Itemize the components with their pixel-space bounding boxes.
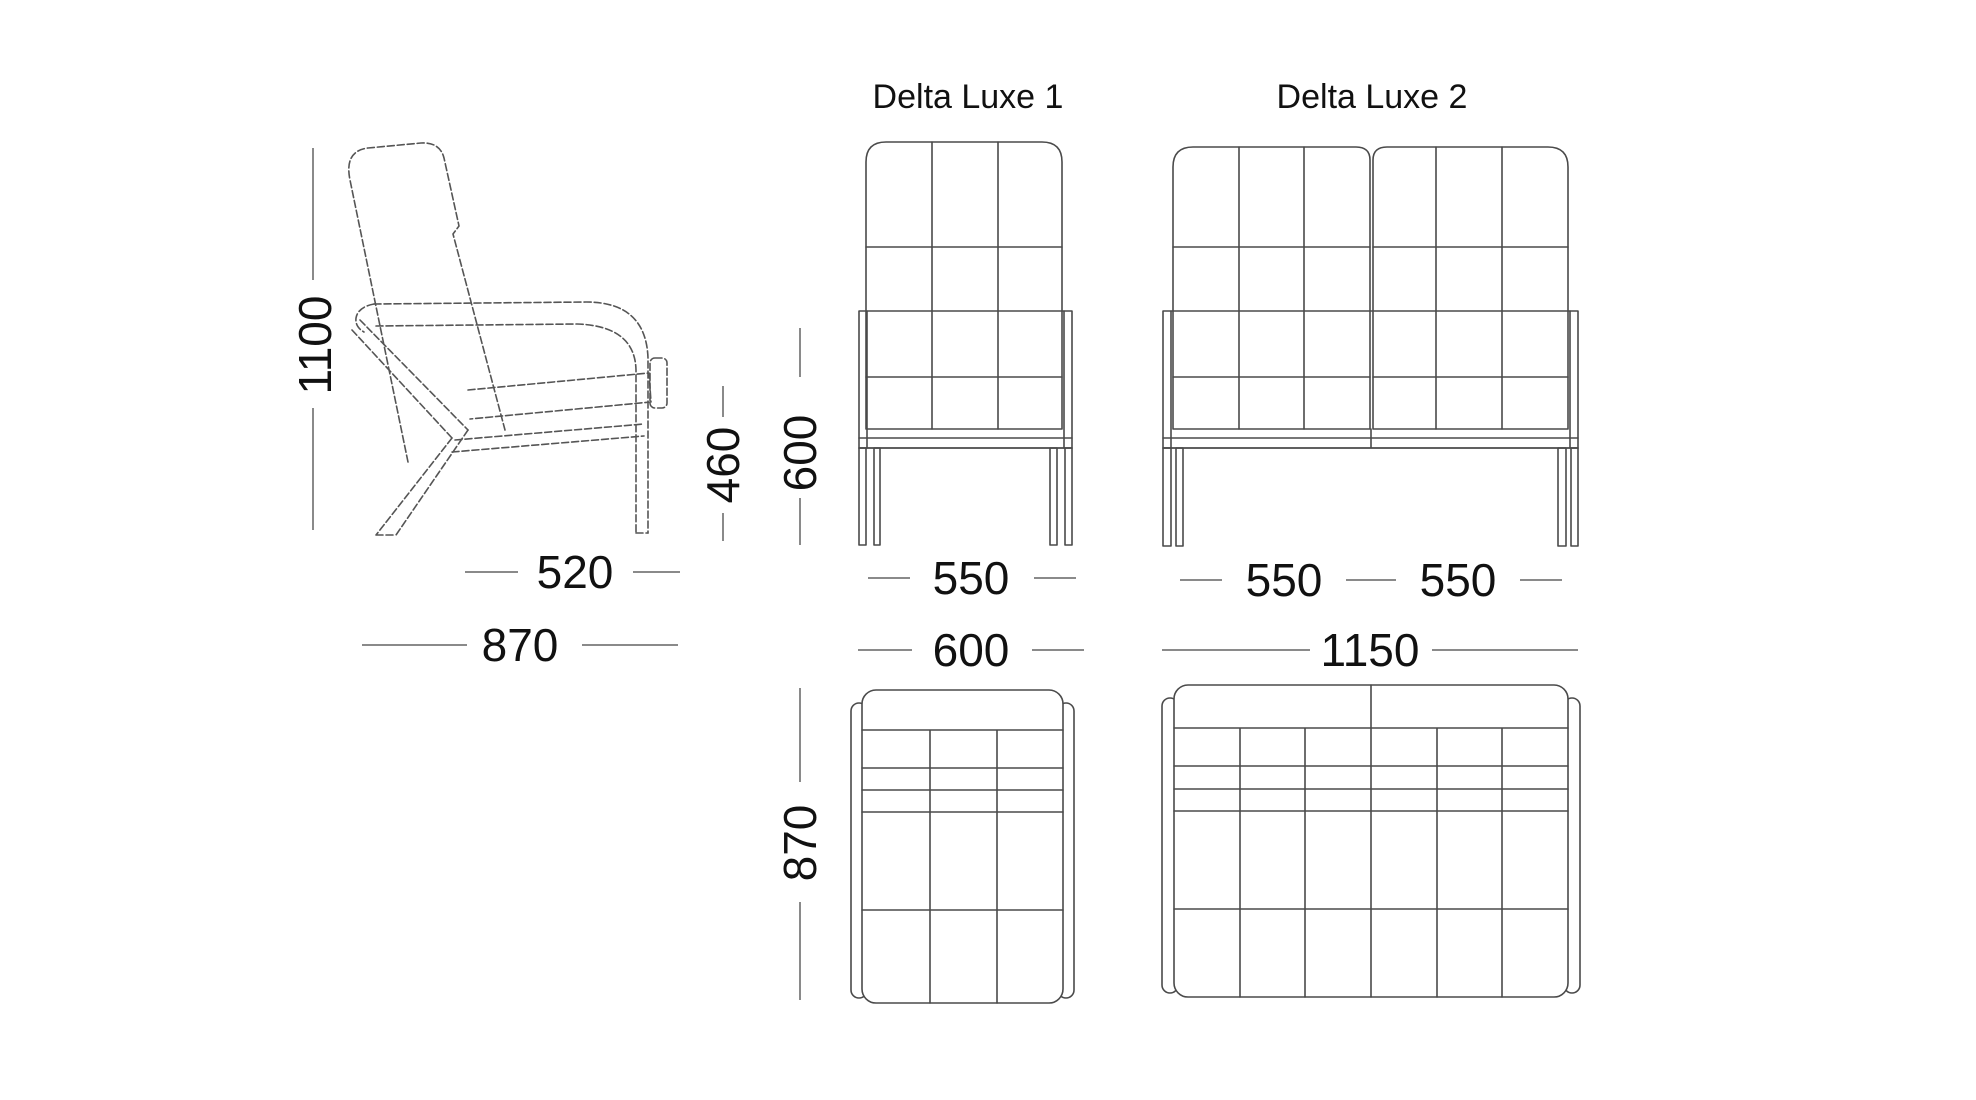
dimension-seat-height: 460	[697, 386, 749, 541]
dimension-label-seat-height: 460	[697, 427, 749, 504]
legs	[1163, 448, 1578, 546]
dimension-label-right-seat: 550	[1420, 554, 1497, 606]
dimension-overall-depth: 870	[362, 619, 678, 671]
delta-luxe-1-top-view: 600 870	[774, 624, 1084, 1003]
seat-rail	[452, 424, 644, 452]
dimension-label-top-width-double: 1150	[1321, 624, 1420, 676]
delta-luxe-2-top-view: 1150	[1162, 624, 1580, 997]
armchair-side-view: 1100 460 520 870	[289, 143, 749, 671]
delta-luxe-1-front-view: Delta Luxe 1	[774, 78, 1076, 604]
dimension-label-seat-depth: 520	[537, 546, 614, 598]
dimension-top-width: 600	[858, 624, 1084, 676]
luxe2-front-drawing	[1163, 147, 1578, 546]
delta-luxe-2-front-view: Delta Luxe 2	[1163, 78, 1578, 606]
dimension-label-seat-width: 550	[933, 552, 1010, 604]
model-2-title: Delta Luxe 2	[1277, 78, 1468, 116]
dimension-label-top-depth: 870	[774, 805, 826, 882]
frame-strut	[352, 320, 468, 438]
dimension-top-width-double: 1150	[1162, 624, 1578, 676]
armrest-frame-inner	[867, 311, 1064, 448]
armrest-frame	[859, 311, 1072, 448]
dimension-label-depth: 870	[482, 619, 559, 671]
rear-leg	[376, 430, 468, 535]
backrest-grid	[866, 142, 1062, 429]
dimension-top-depth: 870	[774, 688, 826, 1000]
luxe2-top-drawing	[1162, 685, 1580, 997]
luxe1-front-drawing	[859, 142, 1072, 545]
backrest	[866, 142, 1062, 429]
dimension-label-left-seat: 550	[1246, 554, 1323, 606]
seat-band	[1163, 429, 1578, 448]
dimension-seat-depth: 520	[465, 546, 680, 598]
dimension-label-back-height: 600	[774, 415, 826, 492]
backrest-right	[1373, 147, 1568, 429]
model-1-title: Delta Luxe 1	[873, 78, 1064, 116]
side-view-chair-drawing	[349, 143, 667, 535]
side-bracket	[650, 358, 667, 408]
seat-body	[862, 690, 1063, 1003]
backrest-left	[1173, 147, 1370, 429]
legs	[859, 448, 1072, 545]
dimension-label-height: 1100	[289, 296, 341, 395]
dimension-overall-height: 1100	[289, 148, 341, 530]
armrest-outer-line	[374, 302, 648, 533]
dimension-label-top-width: 600	[933, 624, 1010, 676]
furniture-dimension-diagram: 1100 460 520 870 Delta Luxe 1	[0, 0, 1976, 1100]
dimension-double-seat-width: 550 550	[1180, 554, 1562, 606]
dimension-seat-width: 550	[868, 552, 1076, 604]
luxe1-top-drawing	[851, 690, 1074, 1003]
seat-band	[859, 438, 1072, 448]
armrest-end-cap	[356, 304, 374, 332]
diagram-canvas: 1100 460 520 870 Delta Luxe 1	[0, 0, 1976, 1100]
dimension-back-height: 600	[774, 328, 826, 545]
